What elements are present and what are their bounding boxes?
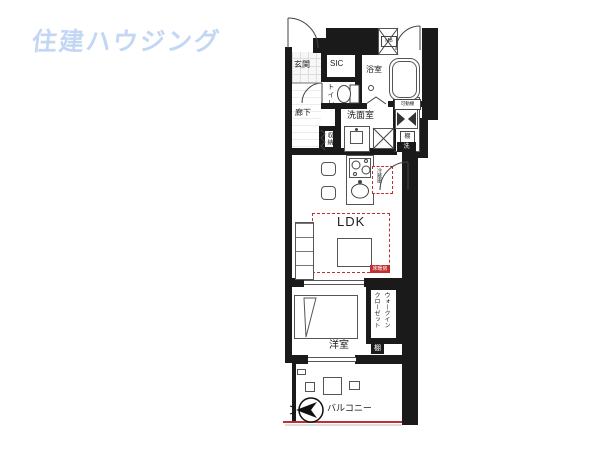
label-storage: 収納 [325,131,333,147]
sliding-partition [304,280,364,285]
label-wic-2: クローゼット [373,292,379,328]
planter [349,381,360,390]
planter [305,382,315,392]
balcony-step [297,369,306,375]
bath-folding-door-icon [366,97,386,104]
wall [326,28,378,55]
wall [285,47,292,363]
label-movable-shelf: 可動棚 [394,99,421,110]
vanity-sink [350,131,363,144]
washer-pan [373,128,394,149]
wall [364,278,402,287]
label-wic-1: ウォークイン [383,292,389,328]
shower-icon [369,86,374,91]
wall [402,152,418,425]
wall [285,148,397,155]
label-ldk: LDK [337,215,365,228]
planter [323,377,342,395]
chair [321,186,336,200]
balcony-window [308,357,356,362]
label-washroom: 洗面室 [347,111,374,120]
bathtub-inner [392,61,417,98]
cupboard [395,109,418,129]
floorplan-page: 住建ハウジング [0,0,600,450]
chair [321,162,336,176]
label-fridge: 冷蔵庫 [376,168,381,183]
balcony-edge-line [283,421,402,423]
bed [294,295,358,339]
company-logo: 住建ハウジング [30,22,223,58]
label-genkan: 玄関 [294,61,310,69]
label-mb: MB [381,36,397,47]
wall [292,363,296,421]
wall [355,355,402,364]
label-bedroom: 洋室 [329,341,349,351]
label-toilet: トイレ [327,83,334,107]
table [337,238,372,267]
label-hallway: 廊下 [295,109,311,117]
label-shelf-bedroom: 棚 [371,343,384,354]
label-washer: 洗 [397,142,416,152]
label-balcony: バルコニー [327,404,372,413]
label-bath: 浴室 [366,66,382,74]
stove-icon [349,158,371,178]
mb-door-arc-icon [396,26,420,50]
label-sic: SIC [330,60,343,68]
label-floor-heating: 床暖房 [370,265,390,273]
wall [321,77,357,82]
wall [355,50,362,108]
tv-board [295,222,314,280]
wall [422,28,438,120]
